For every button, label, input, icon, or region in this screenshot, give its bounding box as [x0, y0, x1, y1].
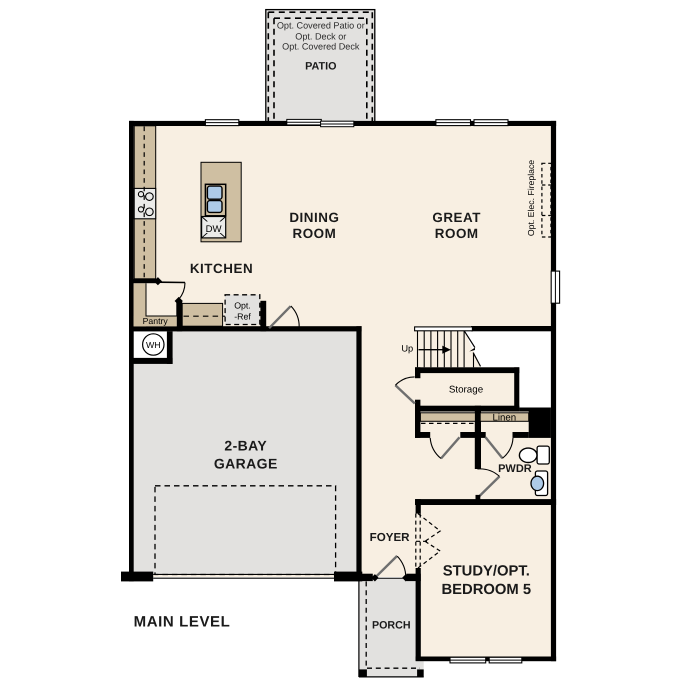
- svg-text:2-BAY: 2-BAY: [224, 437, 267, 453]
- svg-text:Pantry: Pantry: [143, 316, 169, 326]
- svg-text:Opt. Covered Patio or: Opt. Covered Patio or: [277, 20, 365, 30]
- svg-text:Opt. Deck or: Opt. Deck or: [295, 31, 346, 41]
- svg-text:DINING: DINING: [289, 210, 339, 225]
- svg-text:GREAT: GREAT: [432, 210, 481, 225]
- svg-text:BEDROOM 5: BEDROOM 5: [441, 582, 531, 598]
- svg-text:MAIN LEVEL: MAIN LEVEL: [134, 614, 231, 631]
- svg-text:GARAGE: GARAGE: [214, 456, 278, 472]
- svg-text:Up: Up: [401, 344, 413, 354]
- svg-text:WH: WH: [146, 340, 161, 350]
- svg-text:DW: DW: [206, 224, 223, 235]
- svg-text:ROOM: ROOM: [292, 226, 336, 241]
- svg-text:Opt. Covered Deck: Opt. Covered Deck: [282, 41, 360, 51]
- svg-text:FOYER: FOYER: [370, 531, 411, 544]
- svg-text:-Ref: -Ref: [234, 311, 251, 321]
- svg-text:Opt.: Opt.: [234, 300, 251, 310]
- svg-text:ROOM: ROOM: [435, 226, 479, 241]
- svg-text:STUDY/OPT.: STUDY/OPT.: [443, 563, 530, 579]
- svg-text:KITCHEN: KITCHEN: [190, 261, 253, 276]
- svg-text:Opt. Elec. Fireplace: Opt. Elec. Fireplace: [526, 160, 536, 236]
- svg-text:PATIO: PATIO: [305, 60, 336, 72]
- svg-text:Storage: Storage: [449, 385, 484, 396]
- svg-text:PWDR: PWDR: [498, 463, 532, 475]
- svg-text:Linen: Linen: [492, 412, 516, 423]
- svg-text:PORCH: PORCH: [372, 619, 411, 631]
